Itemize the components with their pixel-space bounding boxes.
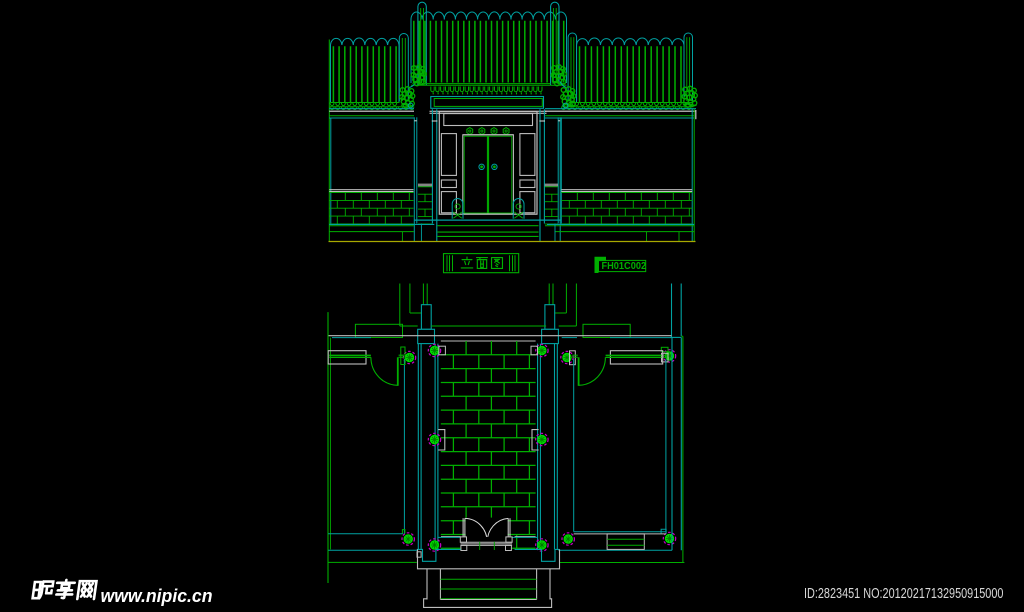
svg-text:FH01C002: FH01C002 <box>602 261 647 273</box>
svg-text:www.nipic.cn: www.nipic.cn <box>101 586 213 606</box>
svg-text:ID:2823451 NO:2012021713295091: ID:2823451 NO:20120217132950915000 <box>804 584 1003 601</box>
